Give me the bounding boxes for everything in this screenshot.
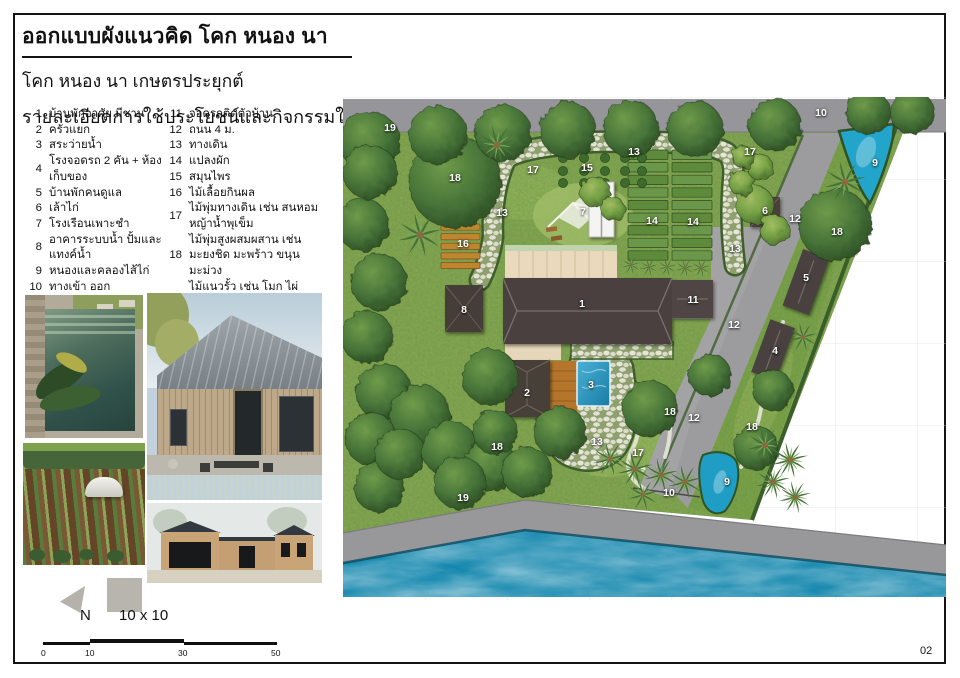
legend-item-12: 12ถนน 4 ม.	[166, 123, 328, 139]
photo-natural-pool-reference	[25, 295, 143, 438]
legend-item-text: แปลงผัก	[189, 154, 230, 170]
legend-item-text: โรงจอดรถ 2 คัน + ห้องเก็บของ	[49, 154, 166, 185]
legend-item-number: 17	[166, 209, 182, 225]
scale-bar-segment	[184, 642, 277, 645]
bush	[79, 549, 94, 560]
legend-item-number: 13	[166, 138, 182, 154]
window	[281, 543, 290, 557]
legend-item-10: 10ทางเข้า ออก	[26, 280, 166, 296]
legend-item-number: 10	[26, 280, 42, 296]
legend-item-number: 12	[166, 123, 182, 139]
legend-item-number: 5	[26, 186, 42, 202]
window	[279, 396, 314, 452]
north-label: N	[80, 607, 91, 624]
legend-item-number: 2	[26, 123, 42, 139]
barn-photo-grass	[147, 475, 322, 500]
legend-item-number: 15	[166, 170, 182, 186]
chair	[263, 463, 274, 472]
legend-item-number: 14	[166, 154, 182, 170]
site-plan: 1918171315713171091414612131816811151242…	[343, 97, 946, 600]
legend-item-number: 9	[26, 264, 42, 280]
photo-vegetable-farm-reference	[23, 443, 145, 565]
legend-item-9: 9หนองและคลองไส้ไก่	[26, 264, 166, 280]
legend-item-number: 4	[26, 162, 42, 178]
legend-item-text: ไม้พุ่มทางเดิน เช่น สนหอม หญ้าน้ำพุเข็ม	[189, 201, 318, 232]
legend-item-text: ครัวแยก	[49, 123, 90, 139]
legend-item-text: ทางเข้า ออก	[49, 280, 110, 296]
legend-item-number: 1	[26, 107, 42, 123]
scale-tick: 50	[271, 648, 280, 658]
bush	[107, 550, 124, 562]
legend-item-number: 11	[166, 107, 182, 123]
dining-table	[214, 461, 260, 468]
photo-barn-house-reference	[147, 293, 322, 500]
legend-item-text: สมุนไพร	[189, 170, 231, 186]
legend-item-text: ทางเดิน	[189, 138, 228, 154]
legend-item-2: 2ครัวแยก	[26, 123, 166, 139]
garage-door	[169, 542, 211, 568]
legend-item-text: จอดรถติดตัวบ้าน	[189, 107, 273, 123]
farm-photo-treeline	[23, 451, 145, 469]
photo-wooden-house-reference	[147, 503, 322, 583]
page: ออกแบบผังแนวคิด โคก หนอง นา โคก หนอง นา …	[0, 0, 960, 678]
house-wall	[219, 541, 275, 570]
legend-item-14: 14แปลงผัก	[166, 154, 328, 170]
legend-item-text: หนองและคลองไส้ไก่	[49, 264, 149, 280]
site-plan-graphic	[343, 97, 946, 600]
legend-item-number: 6	[26, 201, 42, 217]
house-wall	[275, 535, 313, 570]
legend-item-5: 5บ้านพักคนดูแล	[26, 186, 166, 202]
legend-item-text: อาคารระบบน้ำ ปั้มและแทงค์น้ำ	[49, 233, 166, 264]
legend-item-text: บ้านพักอาศัย มีชาน	[49, 107, 145, 123]
legend-item-8: 8อาคารระบบน้ำ ปั้มและแทงค์น้ำ	[26, 233, 166, 264]
legend-item-3: 3สระว่ายน้ำ	[26, 138, 166, 154]
page-number: 02	[920, 645, 932, 657]
legend-item-17: 17ไม้พุ่มทางเดิน เช่น สนหอม หญ้าน้ำพุเข็…	[166, 201, 328, 232]
bush	[29, 549, 45, 561]
legend-item-4: 4โรงจอดรถ 2 คัน + ห้องเก็บของ	[26, 154, 166, 185]
window	[170, 409, 187, 447]
house-wall	[161, 532, 219, 570]
house-photo-ground	[147, 570, 322, 583]
chair	[200, 463, 211, 472]
barn-photo-terrace	[147, 455, 322, 475]
legend-item-1: 1บ้านพักอาศัย มีชาน	[26, 107, 166, 123]
scale-tick: 10	[85, 648, 94, 658]
barn-photo-wood-wall	[157, 389, 322, 455]
window	[297, 543, 306, 557]
pool-photo-wood-deck	[25, 295, 45, 438]
door	[239, 546, 255, 568]
legend-item-11: 11จอดรถติดตัวบ้าน	[166, 107, 328, 123]
legend-item-16: 16ไม้เลื้อยกินผล	[166, 186, 328, 202]
page-subtitle: โคก หนอง นา เกษตรประยุกต์	[22, 67, 392, 95]
scale-bar: 0 10 30 50	[43, 637, 277, 657]
legend-item-text: บ้านพักคนดูแล	[49, 186, 122, 202]
legend-item-number: 3	[26, 138, 42, 154]
page-title: ออกแบบผังแนวคิด โคก หนอง นา	[22, 20, 352, 58]
legend-item-7: 7โรงเรือนเพาะชำ	[26, 217, 166, 233]
scale-tick: 0	[41, 648, 46, 658]
legend-item-18: 18ไม้พุ่มสูงผสมผสาน เช่น มะยงชิด มะพร้าว…	[166, 233, 328, 280]
legend-item-text: เล้าไก่	[49, 201, 79, 217]
legend-item-6: 6เล้าไก่	[26, 201, 166, 217]
stone-bench	[119, 300, 135, 307]
legend-item-text: โรงเรือนเพาะชำ	[49, 217, 129, 233]
legend-item-number: 8	[26, 240, 42, 256]
scale-tick: 30	[178, 648, 187, 658]
legend-item-number: 7	[26, 217, 42, 233]
scale-bar-segment	[90, 639, 184, 644]
legend-item-number: 16	[166, 186, 182, 202]
barn-door	[233, 389, 263, 459]
legend-item-text: ไม้พุ่มสูงผสมผสาน เช่น มะยงชิด มะพร้าว ข…	[189, 233, 328, 280]
legend-item-13: 13ทางเดิน	[166, 138, 328, 154]
legend-item-text: ไม้เลื้อยกินผล	[189, 186, 255, 202]
scale-bar-segment	[43, 642, 90, 645]
legend-item-text: สระว่ายน้ำ	[49, 138, 102, 154]
planter-pot	[168, 459, 178, 469]
legend-item-number: 18	[166, 248, 182, 264]
legend-item-text: ถนน 4 ม.	[189, 123, 235, 139]
legend-column-1: 1บ้านพักอาศัย มีชาน2ครัวแยก3สระว่ายน้ำ4โ…	[26, 107, 166, 295]
bush	[53, 550, 71, 563]
legend-item-15: 15สมุนไพร	[166, 170, 328, 186]
grid-cell-label: 10 x 10	[119, 607, 168, 624]
